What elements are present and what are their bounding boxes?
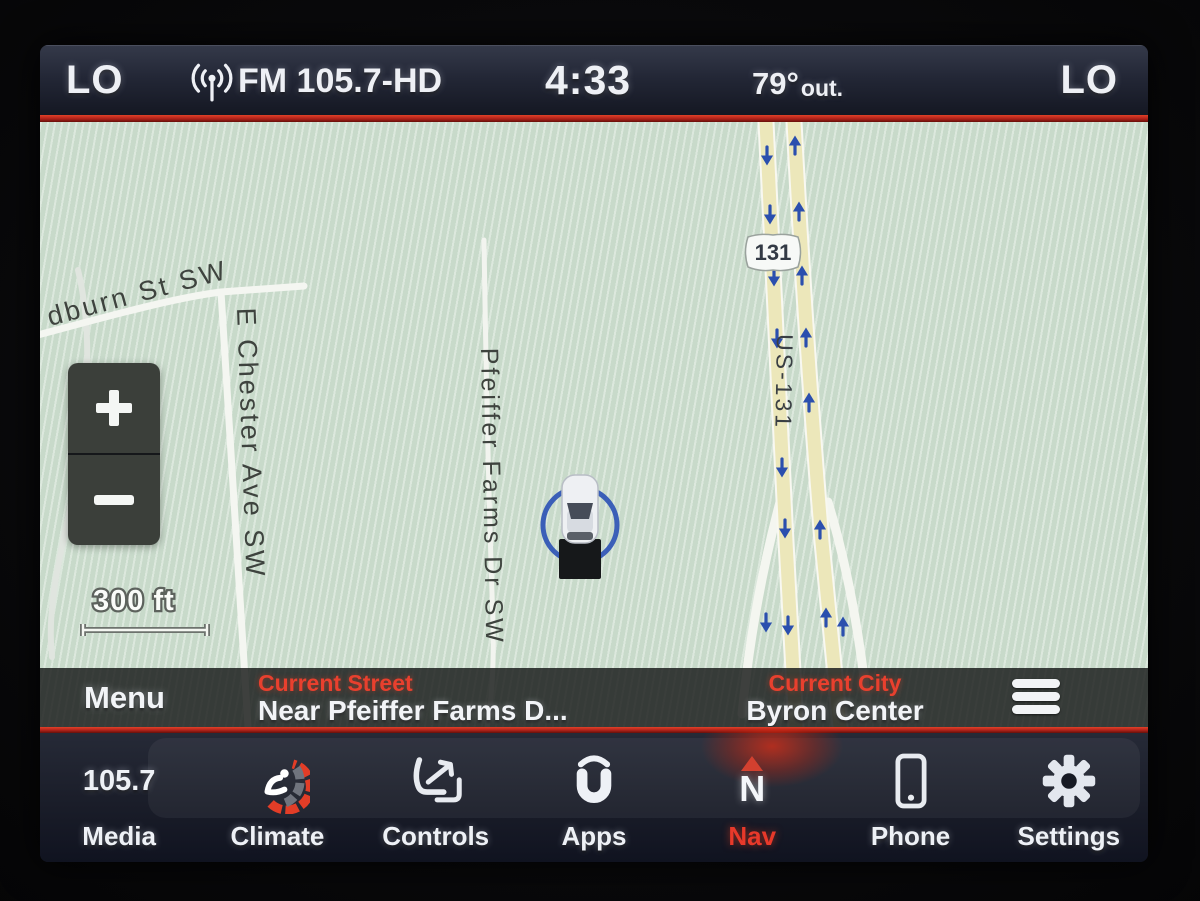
station-frequency: 105.7 bbox=[83, 765, 156, 798]
nav-info-bar: Menu Current Street Near Pfeiffer Farms … bbox=[40, 668, 1148, 727]
current-city-title: Current City bbox=[746, 671, 923, 696]
phone-icon bbox=[886, 743, 936, 819]
zoom-in-button[interactable] bbox=[68, 363, 160, 455]
tab-settings-label: Settings bbox=[1018, 821, 1121, 852]
street-label-us131: US-131 bbox=[770, 334, 798, 430]
outside-temp-value: 79° bbox=[752, 66, 799, 101]
current-street-value: Near Pfeiffer Farms D... bbox=[258, 696, 568, 726]
seat-controls-icon bbox=[405, 743, 467, 819]
touchscreen: LO FM 105.7-HD 4:33 79°out. LO bbox=[40, 45, 1148, 862]
map-area[interactable]: dburn St SW E Chester Ave SW Pfeiffer Fa… bbox=[40, 122, 1148, 727]
street-label-pfeiffer: Pfeiffer Farms Dr SW bbox=[475, 348, 508, 646]
climate-seat-gauge-icon bbox=[244, 743, 310, 819]
menu-button[interactable]: Menu bbox=[84, 668, 165, 727]
outside-temp-unit: out. bbox=[801, 75, 843, 101]
driver-temp-badge: LO bbox=[66, 58, 124, 103]
tab-nav[interactable]: N Nav bbox=[673, 733, 831, 862]
current-city-value: Byron Center bbox=[746, 696, 923, 726]
vehicle-marker bbox=[543, 475, 617, 579]
tab-settings[interactable]: Settings bbox=[990, 733, 1148, 862]
compass-north-icon: N bbox=[739, 743, 765, 819]
uconnect-apps-icon bbox=[565, 743, 623, 819]
map-canvas: dburn St SW E Chester Ave SW Pfeiffer Fa… bbox=[40, 122, 1148, 727]
tab-media[interactable]: 105.7 Media bbox=[40, 733, 198, 862]
us-131-shield: 131 bbox=[746, 234, 801, 270]
shield-number: 131 bbox=[755, 240, 792, 265]
status-bar: LO FM 105.7-HD 4:33 79°out. LO bbox=[40, 45, 1148, 116]
radio-source-label: FM 105.7-HD bbox=[238, 62, 442, 101]
route-options-menu-button[interactable] bbox=[1012, 679, 1064, 719]
tab-climate-label: Climate bbox=[230, 821, 324, 852]
compass-letter: N bbox=[739, 772, 765, 806]
tab-phone-label: Phone bbox=[871, 821, 950, 852]
app-tabs: 105.7 Media Climate bbox=[40, 733, 1148, 862]
radio-antenna-icon bbox=[190, 62, 234, 104]
tab-media-label: Media bbox=[82, 821, 156, 852]
tab-apps-label: Apps bbox=[561, 821, 626, 852]
map-highway-us131 bbox=[742, 122, 868, 727]
tab-nav-label: Nav bbox=[728, 821, 776, 852]
accent-divider-top bbox=[40, 115, 1148, 122]
scale-label: 300 ft bbox=[93, 585, 175, 617]
tab-controls-label: Controls bbox=[382, 821, 489, 852]
hamburger-icon bbox=[1012, 679, 1060, 688]
app-bar: 105.7 Media Climate bbox=[40, 733, 1148, 862]
minus-icon bbox=[94, 495, 134, 505]
map-scale: 300 ft bbox=[83, 585, 207, 636]
current-street-title: Current Street bbox=[258, 671, 568, 696]
current-street-block: Current Street Near Pfeiffer Farms D... bbox=[258, 671, 568, 726]
tab-apps[interactable]: Apps bbox=[515, 733, 673, 862]
passenger-temp-badge: LO bbox=[1060, 58, 1118, 103]
map-zoom-control bbox=[68, 363, 160, 545]
menu-button-label: Menu bbox=[84, 680, 165, 716]
clock: 4:33 bbox=[545, 57, 631, 104]
gear-icon bbox=[1038, 743, 1100, 819]
tab-climate[interactable]: Climate bbox=[198, 733, 356, 862]
outside-temperature: 79°out. bbox=[752, 66, 843, 102]
plus-icon bbox=[96, 390, 132, 426]
tab-phone[interactable]: Phone bbox=[831, 733, 989, 862]
current-city-block: Current City Byron Center bbox=[746, 671, 923, 726]
infotainment-photo: { "status_bar": { "left_temp_badge": "LO… bbox=[0, 0, 1200, 901]
zoom-out-button[interactable] bbox=[68, 455, 160, 545]
tab-controls[interactable]: Controls bbox=[357, 733, 515, 862]
